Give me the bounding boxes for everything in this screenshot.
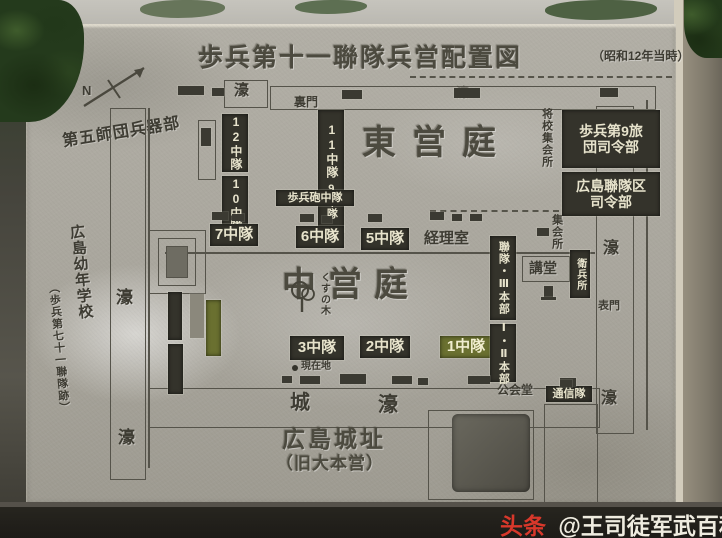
- building-block: [454, 88, 480, 98]
- building-block: [537, 228, 549, 236]
- building-block: [392, 376, 412, 384]
- infantry-gun-company-block: 歩兵砲中隊: [276, 190, 354, 206]
- building-block: [560, 380, 572, 387]
- castle-inner-moat: [452, 414, 530, 492]
- building-block: [418, 378, 428, 385]
- monument-icon: [544, 286, 553, 297]
- map-title: 歩兵第十一聯隊兵営配置図: [198, 44, 522, 73]
- building-block: [232, 214, 244, 221]
- castle-site-note: （旧大本営）: [276, 454, 384, 474]
- company-1-block: 1中隊: [440, 336, 492, 358]
- assembly-hall-label: 集会所: [550, 214, 563, 250]
- company-11-9-block: 11中隊 9中隊: [318, 110, 344, 232]
- moat-label: 濠: [378, 394, 398, 417]
- building-block: [201, 128, 211, 146]
- moat-label: 濠: [603, 240, 619, 258]
- dotted-line: [410, 76, 672, 78]
- district-hq-line2: 司令部: [590, 194, 632, 210]
- castle-label: 城: [290, 392, 310, 415]
- map-title-note: （昭和12年当時）: [592, 50, 689, 64]
- front-gate-label: 表門: [598, 300, 620, 313]
- brigade-hq-line2: 団司令部: [583, 139, 639, 155]
- district-hq-line1: 広島聯隊区: [576, 178, 646, 194]
- watermark-brand: 头条: [500, 513, 546, 538]
- company-7-block: 7中隊: [210, 224, 258, 246]
- company-5-block: 5中隊: [361, 228, 409, 250]
- east-parade-ground-label: 東営庭: [362, 124, 512, 163]
- building-block: [206, 300, 221, 356]
- building-block: [600, 88, 618, 97]
- moat-label: 濠: [234, 82, 249, 99]
- company-12-block: 12中隊: [222, 114, 248, 172]
- building-block: [212, 88, 224, 96]
- moat-label: 濠: [118, 428, 135, 448]
- building-block: [300, 214, 314, 222]
- castle-moat-outline: [544, 404, 598, 504]
- brigade-hq-block: 歩兵第9旅 団司令部: [562, 110, 660, 168]
- company-11-label: 11中隊: [324, 123, 338, 179]
- building-block: [452, 214, 462, 221]
- building-block: [468, 376, 490, 384]
- building-block: [342, 90, 362, 99]
- watermark: 头条 @王司徒军武百科: [500, 507, 722, 538]
- compass-north-label: N: [82, 84, 91, 99]
- building-block: [340, 374, 366, 384]
- guard-post-block: 衛兵所: [570, 250, 590, 298]
- company-6-block: 6中隊: [296, 226, 344, 248]
- building-block: [300, 376, 320, 384]
- company-2-block: 2中隊: [360, 336, 410, 358]
- building-block: [178, 86, 204, 95]
- stone-map-face: 歩兵第十一聯隊兵営配置図 （昭和12年当時） N 第五師団兵器部 広島幼年学校 …: [26, 24, 676, 508]
- brigade-hq-line1: 歩兵第9旅: [579, 123, 643, 139]
- battalion-hq-block: Ⅰ・Ⅱ本部: [490, 324, 516, 382]
- building-block: [470, 214, 482, 221]
- lecture-hall-label: 講堂: [529, 260, 557, 276]
- castle-site-label: 広島城址: [282, 426, 386, 452]
- building-block: [430, 212, 444, 220]
- structure-outline: [166, 246, 188, 278]
- map-grid-line: [165, 252, 595, 254]
- district-hq-block: 広島聯隊区 司令部: [562, 172, 660, 216]
- current-location-label: 現在地: [301, 361, 331, 373]
- camphor-tree-label: くすの木: [318, 272, 330, 316]
- building-block: [168, 292, 182, 340]
- company-3-block: 3中隊: [290, 336, 344, 360]
- moat-label: 濠: [116, 288, 133, 308]
- building-block: [190, 294, 204, 338]
- signal-unit-block: 通信隊: [546, 386, 592, 402]
- monument-photo: 歩兵第十一聯隊兵営配置図 （昭和12年当時） N 第五師団兵器部 広島幼年学校 …: [0, 0, 722, 538]
- public-hall-label: 公会堂: [497, 384, 533, 398]
- stone-right-slab: [674, 0, 722, 538]
- back-gate-label: 裏門: [294, 96, 318, 110]
- camphor-tree-icon: [290, 278, 318, 314]
- building-block: [212, 212, 228, 220]
- current-location-dot: [292, 365, 298, 371]
- building-block: [322, 216, 332, 223]
- accounting-office-label: 経理室: [424, 230, 469, 247]
- monument-icon: [541, 297, 556, 300]
- building-block: [168, 344, 183, 394]
- building-block: [282, 376, 292, 383]
- moat-label: 濠: [601, 390, 617, 408]
- officers-hall-label: 将校集会所: [540, 108, 553, 168]
- regiment-hq-block: 聯隊・Ⅲ本部: [490, 236, 516, 320]
- watermark-handle: @王司徒军武百科: [558, 513, 722, 538]
- building-block: [368, 214, 382, 222]
